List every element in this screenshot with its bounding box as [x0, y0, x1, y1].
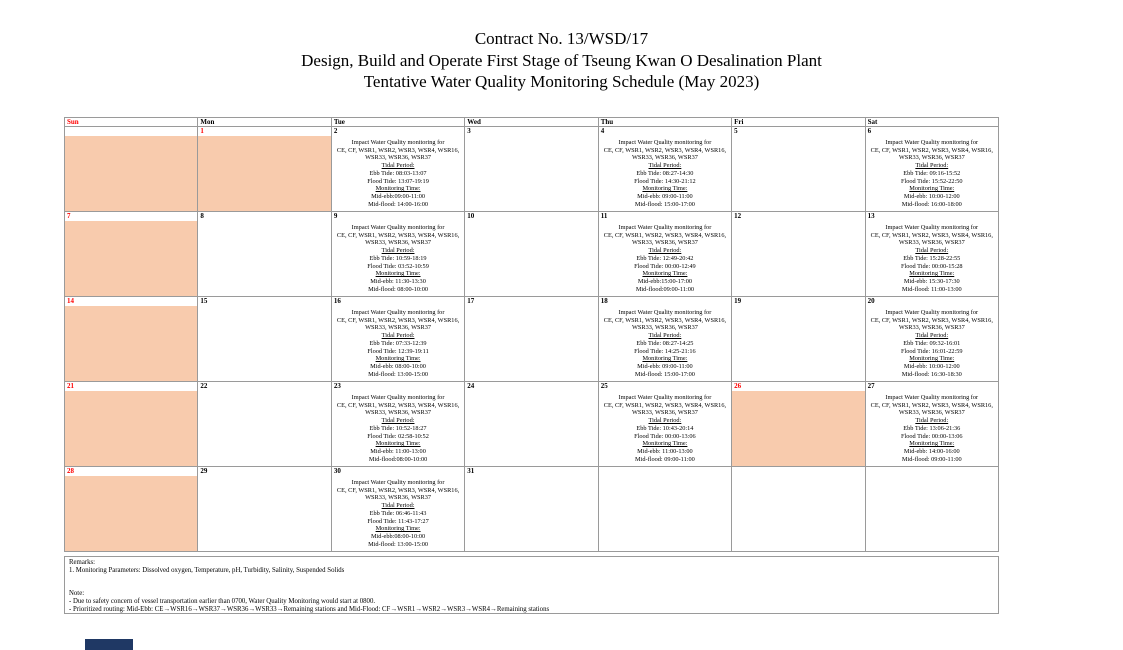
- day-number: [65, 127, 197, 136]
- event-text-line: Impact Water Quality monitoring for: [866, 309, 998, 317]
- day-number: 5: [732, 127, 864, 136]
- holiday-shading: [198, 136, 330, 211]
- day-number: [866, 467, 998, 476]
- day-number: 2: [332, 127, 464, 136]
- day-content: Impact Water Quality monitoring forCE, C…: [866, 306, 998, 381]
- event-text-line: Tidal Period:: [866, 417, 998, 425]
- event-text-line: WSR33, WSR36, WSR37: [599, 324, 731, 332]
- day-cell-7: 7: [65, 212, 198, 297]
- holiday-shading: [732, 391, 864, 466]
- day-number: 17: [465, 297, 597, 306]
- day-cell-14: 14: [65, 297, 198, 382]
- day-content: Impact Water Quality monitoring forCE, C…: [866, 136, 998, 211]
- event-text-line: Ebb Tide: 08:27-14:30: [599, 170, 731, 178]
- day-cell-6: 6Impact Water Quality monitoring forCE, …: [866, 127, 999, 212]
- day-content: [732, 306, 864, 381]
- event-text-line: Mid-ebb: 10:00-12:00: [866, 193, 998, 201]
- day-number: 16: [332, 297, 464, 306]
- event-text-line: WSR33, WSR36, WSR37: [866, 409, 998, 417]
- event-text-line: WSR33, WSR36, WSR37: [866, 239, 998, 247]
- day-number: 15: [198, 297, 330, 306]
- event-text-line: Monitoring Time:: [332, 355, 464, 363]
- event-text-line: Mid-ebb:08:00-10:00: [332, 533, 464, 541]
- event-text-line: Flood Tide: 14:30-21:12: [599, 178, 731, 186]
- day-number: 21: [65, 382, 197, 391]
- day-content: Impact Water Quality monitoring forCE, C…: [332, 136, 464, 211]
- day-number: 12: [732, 212, 864, 221]
- day-number: 22: [198, 382, 330, 391]
- event-text-line: Flood Tide: 13:07-19:19: [332, 178, 464, 186]
- event-text-line: Mid-flood: 09:00-11:00: [866, 456, 998, 464]
- day-content: [198, 391, 330, 466]
- day-cell-26: 26: [732, 382, 865, 467]
- event-text-line: Tidal Period:: [599, 247, 731, 255]
- day-cell-5: 5: [732, 127, 865, 212]
- event-text-line: Mid-flood: 15:00-17:00: [599, 201, 731, 209]
- day-cell-23: 23Impact Water Quality monitoring forCE,…: [332, 382, 465, 467]
- day-number: 19: [732, 297, 864, 306]
- event-text-line: Mid-flood:09:00-11:00: [599, 286, 731, 294]
- day-number: 26: [732, 382, 864, 391]
- day-cell-20: 20Impact Water Quality monitoring forCE,…: [866, 297, 999, 382]
- remarks-spacer: [69, 576, 994, 590]
- holiday-shading: [65, 306, 197, 381]
- event-text-line: Mid-flood: 15:00-17:00: [599, 371, 731, 379]
- day-number: 29: [198, 467, 330, 476]
- event-text-line: Ebb Tide: 10:43-20:14: [599, 425, 731, 433]
- event-text-line: Ebb Tide: 08:03-13:07: [332, 170, 464, 178]
- day-content: [732, 476, 864, 551]
- day-number: 6: [866, 127, 998, 136]
- event-text-line: Ebb Tide: 10:52-18:27: [332, 425, 464, 433]
- event-text-line: Ebb Tide: 15:28-22:55: [866, 255, 998, 263]
- event-text-line: Tidal Period:: [332, 162, 464, 170]
- day-cell-2: 2Impact Water Quality monitoring forCE, …: [332, 127, 465, 212]
- day-content: Impact Water Quality monitoring forCE, C…: [332, 391, 464, 466]
- weekday-header-wed: Wed: [465, 118, 598, 127]
- event-text-line: Flood Tide: 03:52-10:59: [332, 263, 464, 271]
- day-cell-1: 1: [198, 127, 331, 212]
- event-text-line: CE, CF, WSR1, WSR2, WSR3, WSR4, WSR16,: [866, 232, 998, 240]
- day-cell-16: 16Impact Water Quality monitoring forCE,…: [332, 297, 465, 382]
- event-text-line: CE, CF, WSR1, WSR2, WSR3, WSR4, WSR16,: [332, 402, 464, 410]
- event-text-line: Impact Water Quality monitoring for: [866, 394, 998, 402]
- event-text-line: Impact Water Quality monitoring for: [599, 224, 731, 232]
- event-text-line: WSR33, WSR36, WSR37: [332, 324, 464, 332]
- event-text-line: WSR33, WSR36, WSR37: [599, 154, 731, 162]
- event-text-line: CE, CF, WSR1, WSR2, WSR3, WSR4, WSR16,: [599, 317, 731, 325]
- event-text-line: WSR33, WSR36, WSR37: [332, 239, 464, 247]
- weekday-header-fri: Fri: [732, 118, 865, 127]
- event-text-line: Mid-flood: 14:00-16:00: [332, 201, 464, 209]
- event-text-line: CE, CF, WSR1, WSR2, WSR3, WSR4, WSR16,: [332, 487, 464, 495]
- day-cell-10: 10: [465, 212, 598, 297]
- day-number: 28: [65, 467, 197, 476]
- day-cell-15: 15: [198, 297, 331, 382]
- holiday-shading: [65, 391, 197, 466]
- contract-number-title: Contract No. 13/WSD/17: [0, 28, 1123, 50]
- event-text-line: Mid-ebb: 14:00-16:00: [866, 448, 998, 456]
- event-text-line: Impact Water Quality monitoring for: [332, 394, 464, 402]
- event-text-line: Tidal Period:: [332, 332, 464, 340]
- event-text-line: Mid-ebb: 15:30-17:30: [866, 278, 998, 286]
- event-text-line: Flood Tide: 14:25-21:16: [599, 348, 731, 356]
- note-heading: Note:: [69, 590, 994, 598]
- event-text-line: Flood Tide: 00:00-12:49: [599, 263, 731, 271]
- event-text-line: Monitoring Time:: [866, 270, 998, 278]
- day-number: 1: [198, 127, 330, 136]
- note-line-routing: - Prioritized routing: Mid-Ebb: CE→WSR16…: [69, 606, 994, 614]
- event-text-line: Mid-ebb: 11:00-13:00: [332, 448, 464, 456]
- day-content: Impact Water Quality monitoring forCE, C…: [599, 136, 731, 211]
- day-number: 4: [599, 127, 731, 136]
- project-name-title: Design, Build and Operate First Stage of…: [0, 50, 1123, 72]
- day-cell-3: 3: [465, 127, 598, 212]
- event-text-line: Tidal Period:: [866, 162, 998, 170]
- day-content: Impact Water Quality monitoring forCE, C…: [599, 391, 731, 466]
- event-text-line: Monitoring Time:: [866, 440, 998, 448]
- day-content: [198, 476, 330, 551]
- holiday-shading: [65, 476, 197, 551]
- event-text-line: Mid-flood: 13:00-15:00: [332, 541, 464, 549]
- event-text-line: Ebb Tide: 13:06-21:36: [866, 425, 998, 433]
- calendar-grid: SunMonTueWedThuFriSat12Impact Water Qual…: [64, 117, 999, 552]
- day-cell-blank: [732, 467, 865, 552]
- event-text-line: Impact Water Quality monitoring for: [866, 139, 998, 147]
- event-text-line: Monitoring Time:: [866, 355, 998, 363]
- day-content: [732, 136, 864, 211]
- day-cell-21: 21: [65, 382, 198, 467]
- event-text-line: Flood Tide: 00:00-13:06: [599, 433, 731, 441]
- day-number: 31: [465, 467, 597, 476]
- day-number: 10: [465, 212, 597, 221]
- day-number: 18: [599, 297, 731, 306]
- day-content: Impact Water Quality monitoring forCE, C…: [866, 391, 998, 466]
- event-text-line: Mid-ebb: 11:30-13:30: [332, 278, 464, 286]
- day-number: 20: [866, 297, 998, 306]
- day-content: [198, 306, 330, 381]
- event-text-line: Ebb Tide: 09:32-16:01: [866, 340, 998, 348]
- event-text-line: Flood Tide: 02:58-10:52: [332, 433, 464, 441]
- day-content: Impact Water Quality monitoring forCE, C…: [866, 221, 998, 296]
- event-text-line: Ebb Tide: 06:46-11:43: [332, 510, 464, 518]
- event-text-line: Mid-ebb:09:00-11:00: [332, 193, 464, 201]
- event-text-line: Flood Tide: 12:39-19:11: [332, 348, 464, 356]
- event-text-line: CE, CF, WSR1, WSR2, WSR3, WSR4, WSR16,: [332, 232, 464, 240]
- event-text-line: Tidal Period:: [332, 247, 464, 255]
- day-cell-18: 18Impact Water Quality monitoring forCE,…: [599, 297, 732, 382]
- event-text-line: Mid-ebb:15:00-17:00: [599, 278, 731, 286]
- day-cell-27: 27Impact Water Quality monitoring forCE,…: [866, 382, 999, 467]
- event-text-line: Ebb Tide: 10:59-18:19: [332, 255, 464, 263]
- event-text-line: Ebb Tide: 09:16-15:52: [866, 170, 998, 178]
- event-text-line: Tidal Period:: [599, 332, 731, 340]
- event-text-line: WSR33, WSR36, WSR37: [599, 239, 731, 247]
- day-content: Impact Water Quality monitoring forCE, C…: [332, 221, 464, 296]
- event-text-line: Mid-flood: 16:30-18:30: [866, 371, 998, 379]
- day-cell-11: 11Impact Water Quality monitoring forCE,…: [599, 212, 732, 297]
- day-number: 11: [599, 212, 731, 221]
- day-number: 25: [599, 382, 731, 391]
- event-text-line: Impact Water Quality monitoring for: [866, 224, 998, 232]
- day-content: Impact Water Quality monitoring forCE, C…: [599, 221, 731, 296]
- event-text-line: Monitoring Time:: [599, 270, 731, 278]
- remarks-box: Remarks: 1. Monitoring Parameters: Disso…: [64, 556, 999, 614]
- event-text-line: WSR33, WSR36, WSR37: [332, 409, 464, 417]
- day-content: [465, 221, 597, 296]
- event-text-line: Flood Tide: 00:00-15:28: [866, 263, 998, 271]
- monitoring-calendar: SunMonTueWedThuFriSat12Impact Water Qual…: [64, 117, 999, 552]
- event-text-line: Mid-flood: 13:00-15:00: [332, 371, 464, 379]
- day-number: 27: [866, 382, 998, 391]
- event-text-line: Mid-ebb: 08:00-10:00: [332, 363, 464, 371]
- event-text-line: Monitoring Time:: [332, 270, 464, 278]
- day-cell-30: 30Impact Water Quality monitoring forCE,…: [332, 467, 465, 552]
- day-content: Impact Water Quality monitoring forCE, C…: [599, 306, 731, 381]
- event-text-line: Impact Water Quality monitoring for: [332, 139, 464, 147]
- event-text-line: Mid-ebb: 09:00-11:00: [599, 193, 731, 201]
- event-text-line: Impact Water Quality monitoring for: [599, 309, 731, 317]
- event-text-line: CE, CF, WSR1, WSR2, WSR3, WSR4, WSR16,: [599, 232, 731, 240]
- day-number: [732, 467, 864, 476]
- event-text-line: Ebb Tide: 08:27-14:25: [599, 340, 731, 348]
- day-content: [465, 136, 597, 211]
- event-text-line: CE, CF, WSR1, WSR2, WSR3, WSR4, WSR16,: [866, 402, 998, 410]
- event-text-line: Tidal Period:: [599, 417, 731, 425]
- day-number: 23: [332, 382, 464, 391]
- event-text-line: WSR33, WSR36, WSR37: [332, 154, 464, 162]
- event-text-line: Impact Water Quality monitoring for: [332, 309, 464, 317]
- day-number: 8: [198, 212, 330, 221]
- event-text-line: WSR33, WSR36, WSR37: [599, 409, 731, 417]
- day-content: [465, 306, 597, 381]
- event-text-line: Flood Tide: 15:52-22:50: [866, 178, 998, 186]
- day-number: 14: [65, 297, 197, 306]
- event-text-line: CE, CF, WSR1, WSR2, WSR3, WSR4, WSR16,: [866, 147, 998, 155]
- event-text-line: Ebb Tide: 07:33-12:39: [332, 340, 464, 348]
- event-text-line: Tidal Period:: [332, 502, 464, 510]
- document-title-block: Contract No. 13/WSD/17 Design, Build and…: [0, 28, 1123, 93]
- event-text-line: Tidal Period:: [866, 332, 998, 340]
- day-number: 24: [465, 382, 597, 391]
- event-text-line: Tidal Period:: [599, 162, 731, 170]
- event-text-line: Impact Water Quality monitoring for: [599, 139, 731, 147]
- day-cell-31: 31: [465, 467, 598, 552]
- day-cell-22: 22: [198, 382, 331, 467]
- day-cell-19: 19: [732, 297, 865, 382]
- event-text-line: CE, CF, WSR1, WSR2, WSR3, WSR4, WSR16,: [866, 317, 998, 325]
- event-text-line: Monitoring Time:: [332, 440, 464, 448]
- event-text-line: Tidal Period:: [332, 417, 464, 425]
- day-cell-25: 25Impact Water Quality monitoring forCE,…: [599, 382, 732, 467]
- day-number: 13: [866, 212, 998, 221]
- day-number: 7: [65, 212, 197, 221]
- event-text-line: Monitoring Time:: [599, 185, 731, 193]
- event-text-line: CE, CF, WSR1, WSR2, WSR3, WSR4, WSR16,: [332, 317, 464, 325]
- day-cell-4: 4Impact Water Quality monitoring forCE, …: [599, 127, 732, 212]
- day-content: [732, 221, 864, 296]
- day-cell-28: 28: [65, 467, 198, 552]
- event-text-line: Mid-flood: 11:00-13:00: [866, 286, 998, 294]
- day-cell-blank: [599, 467, 732, 552]
- day-content: Impact Water Quality monitoring forCE, C…: [332, 306, 464, 381]
- event-text-line: Monitoring Time:: [866, 185, 998, 193]
- event-text-line: CE, CF, WSR1, WSR2, WSR3, WSR4, WSR16,: [332, 147, 464, 155]
- day-cell-12: 12: [732, 212, 865, 297]
- day-cell-blank: [65, 127, 198, 212]
- weekday-header-sat: Sat: [866, 118, 999, 127]
- day-cell-29: 29: [198, 467, 331, 552]
- holiday-shading: [65, 136, 197, 211]
- event-text-line: Monitoring Time:: [599, 355, 731, 363]
- event-text-line: Monitoring Time:: [332, 525, 464, 533]
- event-text-line: Flood Tide: 11:43-17:27: [332, 518, 464, 526]
- bottom-left-navy-bar: [85, 639, 133, 650]
- day-cell-8: 8: [198, 212, 331, 297]
- event-text-line: CE, CF, WSR1, WSR2, WSR3, WSR4, WSR16,: [599, 147, 731, 155]
- event-text-line: Mid-flood: 09:00-11:00: [599, 456, 731, 464]
- day-cell-blank: [866, 467, 999, 552]
- weekday-header-mon: Mon: [198, 118, 331, 127]
- event-text-line: Ebb Tide: 12:49-20:42: [599, 255, 731, 263]
- remarks-line-parameters: 1. Monitoring Parameters: Dissolved oxyg…: [69, 567, 994, 575]
- day-number: 9: [332, 212, 464, 221]
- day-number: 30: [332, 467, 464, 476]
- day-content: [198, 221, 330, 296]
- day-number: 3: [465, 127, 597, 136]
- weekday-header-tue: Tue: [332, 118, 465, 127]
- event-text-line: Monitoring Time:: [599, 440, 731, 448]
- event-text-line: WSR33, WSR36, WSR37: [332, 494, 464, 502]
- weekday-header-sun: Sun: [65, 118, 198, 127]
- event-text-line: Impact Water Quality monitoring for: [332, 224, 464, 232]
- weekday-header-thu: Thu: [599, 118, 732, 127]
- event-text-line: Mid-ebb: 11:00-13:00: [599, 448, 731, 456]
- event-text-line: CE, CF, WSR1, WSR2, WSR3, WSR4, WSR16,: [599, 402, 731, 410]
- day-number: [599, 467, 731, 476]
- event-text-line: Monitoring Time:: [332, 185, 464, 193]
- day-content: [465, 391, 597, 466]
- holiday-shading: [65, 221, 197, 296]
- event-text-line: Flood Tide: 00:00-13:06: [866, 433, 998, 441]
- event-text-line: WSR33, WSR36, WSR37: [866, 154, 998, 162]
- note-line-safety: - Due to safety concern of vessel transp…: [69, 598, 994, 606]
- day-content: [599, 476, 731, 551]
- day-cell-17: 17: [465, 297, 598, 382]
- day-content: Impact Water Quality monitoring forCE, C…: [332, 476, 464, 551]
- event-text-line: Tidal Period:: [866, 247, 998, 255]
- event-text-line: Mid-flood:08:00-10:00: [332, 456, 464, 464]
- schedule-title: Tentative Water Quality Monitoring Sched…: [0, 71, 1123, 93]
- day-cell-13: 13Impact Water Quality monitoring forCE,…: [866, 212, 999, 297]
- day-cell-24: 24: [465, 382, 598, 467]
- day-cell-9: 9Impact Water Quality monitoring forCE, …: [332, 212, 465, 297]
- event-text-line: Mid-flood: 08:00-10:00: [332, 286, 464, 294]
- event-text-line: Mid-ebb: 09:00-11:00: [599, 363, 731, 371]
- event-text-line: Impact Water Quality monitoring for: [332, 479, 464, 487]
- event-text-line: WSR33, WSR36, WSR37: [866, 324, 998, 332]
- event-text-line: Mid-ebb: 10:00-12:00: [866, 363, 998, 371]
- day-content: [866, 476, 998, 551]
- event-text-line: Flood Tide: 16:01-22:59: [866, 348, 998, 356]
- remarks-heading: Remarks:: [69, 559, 994, 567]
- day-content: [465, 476, 597, 551]
- event-text-line: Impact Water Quality monitoring for: [599, 394, 731, 402]
- event-text-line: Mid-flood: 16:00-18:00: [866, 201, 998, 209]
